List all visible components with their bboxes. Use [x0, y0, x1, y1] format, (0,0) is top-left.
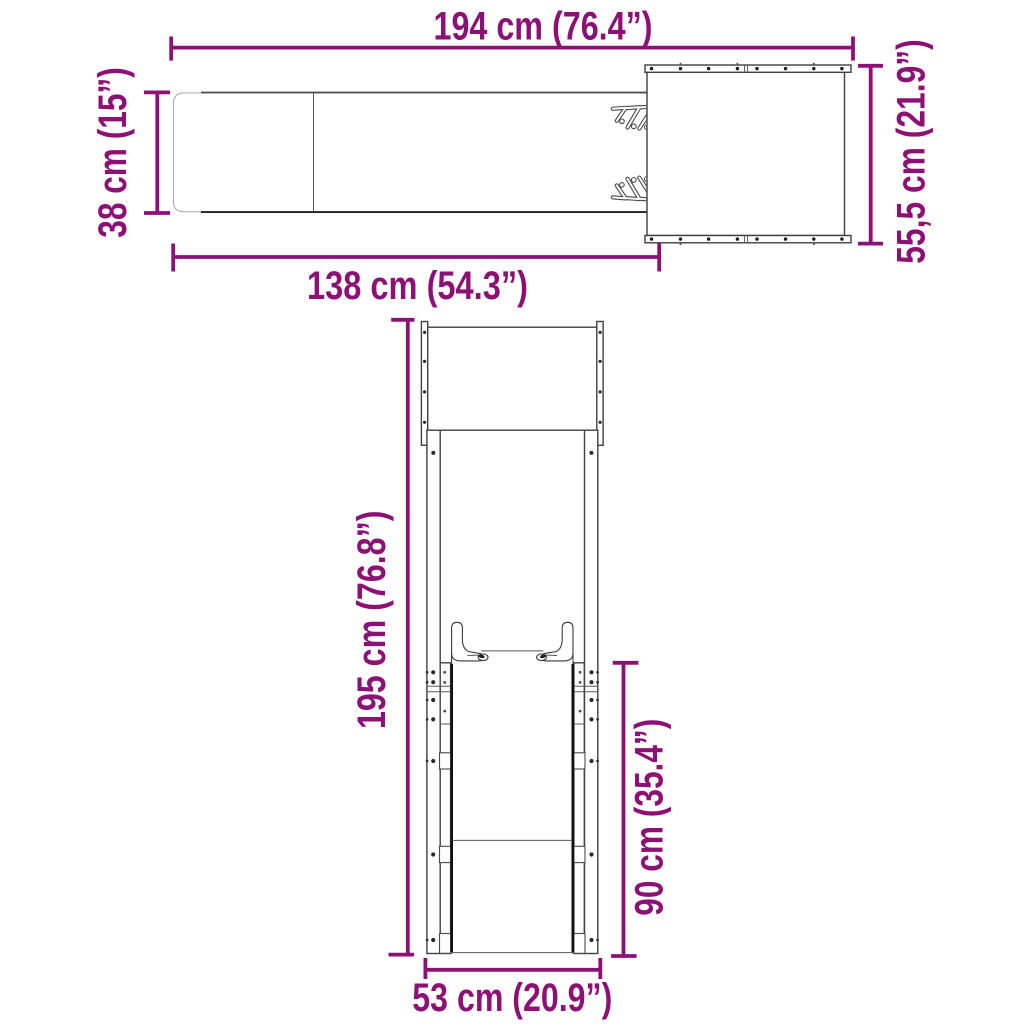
svg-text:195 cm (76.8”): 195 cm (76.8”) [350, 511, 394, 730]
svg-text:138 cm (54.3”): 138 cm (54.3”) [307, 264, 528, 308]
svg-text:55,5 cm (21.9”): 55,5 cm (21.9”) [890, 39, 934, 264]
svg-text:194 cm (76.4”): 194 cm (76.4”) [434, 5, 653, 49]
svg-text:53 cm (20.9”): 53 cm (20.9”) [412, 976, 612, 1020]
svg-text:38 cm (15”): 38 cm (15”) [91, 67, 135, 238]
svg-text:90 cm (35.4”): 90 cm (35.4”) [628, 719, 672, 916]
